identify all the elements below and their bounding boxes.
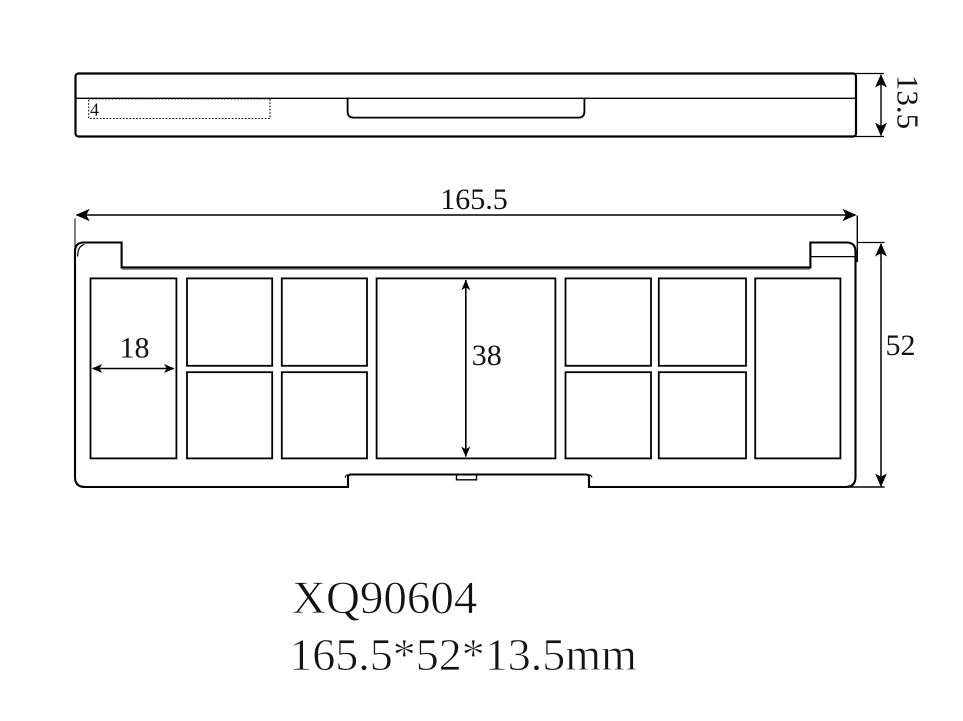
svg-text:13.5: 13.5 [890,75,925,129]
svg-text:4: 4 [90,100,99,120]
svg-text:38: 38 [472,339,502,372]
svg-text:165.5: 165.5 [440,183,508,216]
svg-text:18: 18 [120,332,150,365]
svg-text:XQ90604: XQ90604 [292,572,477,624]
svg-text:165.5*52*13.5mm: 165.5*52*13.5mm [289,629,637,680]
svg-text:52: 52 [886,329,916,362]
